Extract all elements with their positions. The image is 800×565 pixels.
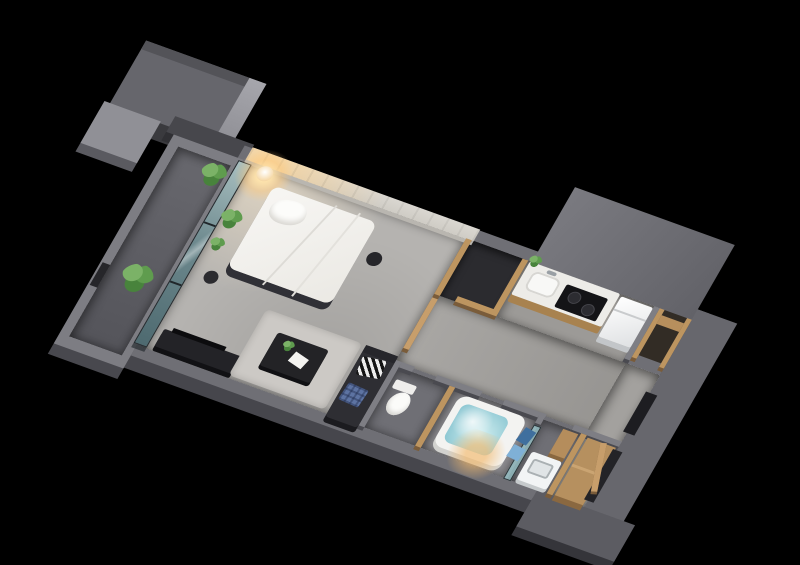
apartment-floorplan: [143, 160, 692, 507]
refrigerator-door-seam: [613, 308, 646, 321]
glass-door-frame-bar: [204, 221, 216, 227]
glass-door-frame-bar: [169, 281, 181, 287]
stove-burner: [565, 290, 584, 306]
scene-background: [0, 0, 800, 565]
stove-burner: [578, 302, 597, 318]
washer-lid: [526, 458, 555, 479]
